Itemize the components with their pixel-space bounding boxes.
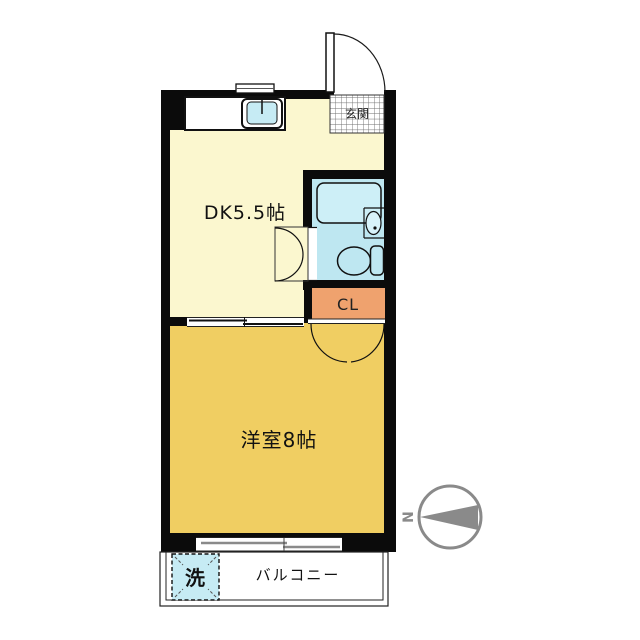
entrance-area: 玄関 (330, 95, 384, 133)
western-room-label: 洋室8帖 (241, 428, 318, 452)
entrance-door-swing-arc (334, 34, 385, 92)
kitchen-window (236, 84, 274, 93)
wall-bath-left-upper (303, 179, 312, 227)
wall-bath-top (303, 170, 396, 179)
bath-sink-drain-icon (373, 226, 376, 229)
balcony-window-band (196, 537, 342, 552)
entrance-door-leaf (326, 33, 334, 92)
balcony-window (196, 537, 342, 552)
compass: N (401, 486, 481, 548)
wall-closet-left (304, 287, 312, 323)
wall-partition-stub (161, 317, 187, 326)
wall-top-left-block (161, 90, 187, 130)
dining-kitchen-label: DK5.5帖 (204, 202, 286, 224)
washer-label: 洗 (185, 566, 205, 590)
compass-north-label: N (401, 511, 417, 523)
sliding-partition-band (187, 317, 304, 327)
entrance-label: 玄関 (345, 106, 369, 121)
floor-plan: 玄関 CL (0, 0, 640, 640)
washing-machine-space: 洗 (172, 554, 219, 600)
balcony: バルコニー 洗 (160, 552, 388, 606)
toilet-tank (371, 246, 384, 275)
sliding-partition (187, 317, 304, 327)
entrance-door (326, 33, 385, 92)
wall-bottom-left-block (161, 533, 196, 552)
toilet-bowl (338, 247, 371, 275)
bath-door-opening (308, 227, 317, 281)
closet-label: CL (337, 295, 359, 314)
wall-right (384, 90, 396, 552)
kitchen-counter (185, 97, 285, 130)
bath-sink-bowl (366, 212, 381, 235)
floor-plan-page: 玄関 CL (0, 0, 640, 640)
balcony-label: バルコニー (256, 566, 341, 584)
